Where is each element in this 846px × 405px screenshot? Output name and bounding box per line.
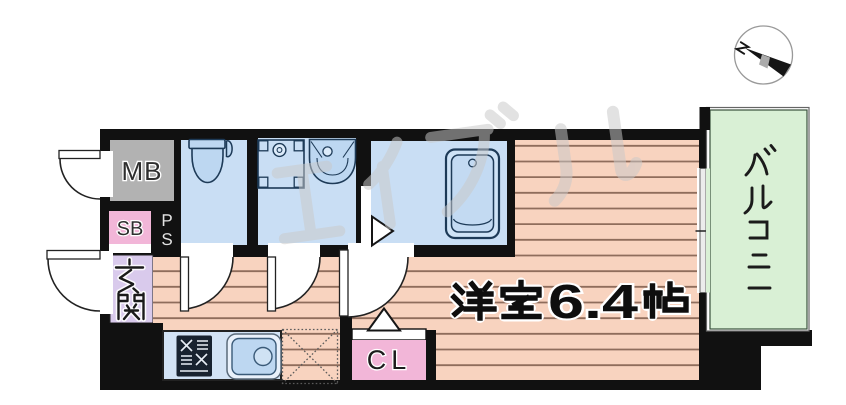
svg-text:P: P xyxy=(161,211,172,230)
svg-text:CL: CL xyxy=(367,345,412,375)
svg-text:SB: SB xyxy=(117,218,144,240)
svg-text:MB: MB xyxy=(122,156,163,186)
svg-text:6.4: 6.4 xyxy=(548,276,638,329)
svg-text:S: S xyxy=(161,230,172,249)
